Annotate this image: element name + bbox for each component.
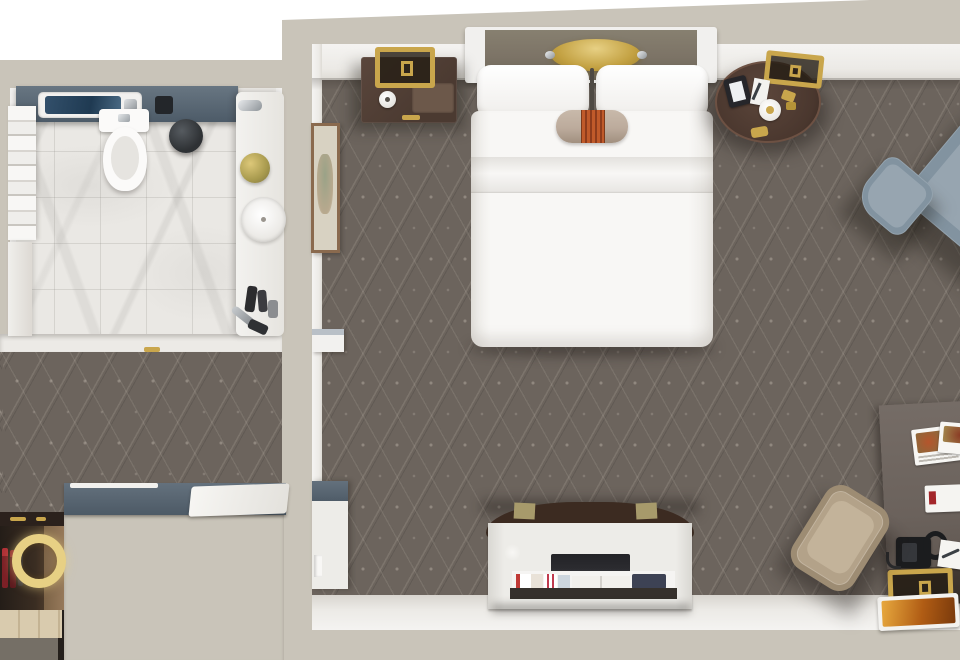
trinket-dish bbox=[759, 99, 781, 121]
vessel-sink bbox=[241, 197, 286, 242]
tray-contents bbox=[881, 597, 955, 627]
dish-item bbox=[766, 106, 774, 114]
closet-top-band bbox=[312, 481, 348, 501]
white-bench-pad bbox=[188, 483, 289, 517]
floorplan-render bbox=[0, 0, 960, 660]
pen-card bbox=[937, 540, 960, 570]
menu-card-2 bbox=[938, 421, 960, 455]
nightstand-pull bbox=[402, 115, 420, 120]
counter-faucet bbox=[238, 100, 262, 111]
pillow-gap-cord bbox=[590, 68, 594, 116]
duvet bbox=[471, 111, 713, 347]
drawer-pull-2 bbox=[36, 517, 46, 521]
bathroom-top-wall bbox=[0, 60, 284, 88]
wardrobe-block bbox=[64, 512, 284, 660]
toilet-seat bbox=[111, 136, 139, 180]
magazine-2 bbox=[531, 574, 543, 589]
drawer-pull-1 bbox=[10, 517, 26, 521]
minibar-cabinet bbox=[0, 512, 64, 660]
pendant-chrome-left bbox=[545, 51, 555, 59]
toilet-bowl bbox=[103, 127, 147, 191]
clock-center bbox=[385, 97, 390, 102]
table-gold-item-2 bbox=[786, 102, 796, 110]
credenza-knob bbox=[505, 543, 520, 562]
nightstand-lamp bbox=[375, 47, 435, 88]
menu-photo-2 bbox=[943, 426, 960, 444]
credenza-base-shadow bbox=[492, 604, 690, 613]
notepad-pen bbox=[752, 83, 762, 101]
flower-posy bbox=[240, 153, 270, 183]
minibar-bottle-1 bbox=[2, 548, 8, 588]
table-lamp-detail bbox=[789, 65, 801, 78]
black-accessory bbox=[155, 96, 173, 114]
magazine-3 bbox=[544, 574, 557, 589]
door-jamb bbox=[312, 329, 344, 352]
round-stool bbox=[169, 119, 203, 153]
door-hinge bbox=[144, 347, 160, 352]
lamp-inner-detail bbox=[401, 61, 413, 76]
pen bbox=[941, 548, 960, 558]
pendant-chrome-right bbox=[637, 51, 647, 59]
magazine-4 bbox=[558, 575, 570, 589]
desk-lamp-detail bbox=[919, 581, 931, 595]
letter-seal bbox=[929, 491, 936, 504]
flush-button bbox=[118, 114, 130, 122]
toiletry-bottle-2 bbox=[257, 290, 268, 313]
ring-mirror bbox=[12, 534, 66, 588]
bedroom-bottom-wall bbox=[282, 630, 960, 660]
towel-shelving bbox=[8, 106, 36, 240]
side-panel bbox=[8, 242, 32, 336]
duvet-fold bbox=[471, 157, 713, 193]
serving-tray bbox=[877, 593, 960, 631]
luggage-strap-1 bbox=[514, 502, 536, 519]
luggage-strap-2 bbox=[636, 502, 658, 519]
alarm-clock bbox=[379, 91, 396, 108]
bolster-pillow bbox=[556, 110, 628, 143]
bolster-band bbox=[581, 110, 605, 143]
letter bbox=[925, 484, 960, 512]
center-wall bbox=[282, 0, 312, 660]
phone-keypad bbox=[902, 543, 917, 562]
shelf-tablet bbox=[632, 574, 666, 589]
wood-shelf bbox=[0, 610, 62, 638]
credenza-shelf-band bbox=[510, 588, 677, 599]
artwork-motif bbox=[317, 154, 333, 214]
table-lamp bbox=[763, 50, 824, 89]
entry-closet-panel bbox=[312, 481, 348, 589]
sink-drain bbox=[261, 217, 266, 222]
framed-artwork bbox=[311, 123, 340, 253]
cabinet-base bbox=[0, 638, 58, 660]
counter-edge-strip bbox=[70, 483, 158, 488]
toiletry-bottle-3 bbox=[268, 300, 278, 318]
bathroom-bottom-wall bbox=[0, 334, 284, 352]
closet-handle bbox=[314, 555, 322, 577]
